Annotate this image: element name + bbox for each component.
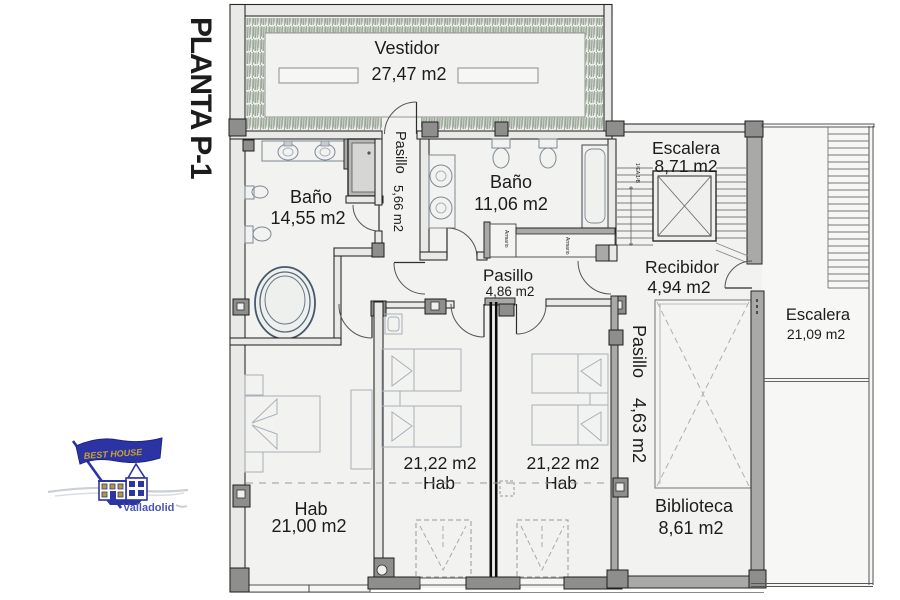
svg-text:27,47 m2: 27,47 m2 [371, 64, 446, 84]
svg-text:21,09 m2: 21,09 m2 [787, 326, 846, 342]
svg-text:Armario: Armario [564, 237, 570, 255]
svg-text:21,22 m2: 21,22 m2 [527, 453, 600, 473]
svg-text:8,71 m2: 8,71 m2 [654, 156, 717, 176]
svg-text:Recibidor: Recibidor [645, 257, 719, 277]
svg-text:Escalera: Escalera [652, 138, 720, 158]
svg-text:Baño: Baño [490, 172, 532, 192]
svg-text:PLANTA P-1: PLANTA P-1 [184, 17, 217, 179]
svg-text:5,66 m2: 5,66 m2 [391, 185, 406, 232]
svg-text:Vestidor: Vestidor [374, 38, 439, 58]
svg-text:Biblioteca: Biblioteca [655, 496, 734, 516]
svg-text:Baño: Baño [290, 187, 332, 207]
svg-text:Valladolid: Valladolid [123, 502, 174, 514]
svg-text:4,63 m2: 4,63 m2 [629, 398, 649, 463]
svg-text:11,06 m2: 11,06 m2 [474, 194, 548, 214]
svg-text:4,94 m2: 4,94 m2 [647, 277, 710, 297]
svg-text:Pasillo: Pasillo [392, 131, 408, 174]
svg-text:Hab: Hab [423, 473, 455, 493]
svg-text:Armario: Armario [503, 230, 509, 248]
svg-text:21,00 m2: 21,00 m2 [271, 516, 346, 536]
svg-text:14,55 m2: 14,55 m2 [270, 208, 345, 228]
svg-text:8,61 m2: 8,61 m2 [658, 518, 723, 538]
svg-text:Pasillo: Pasillo [629, 325, 649, 378]
svg-text:Pasillo: Pasillo [483, 266, 533, 285]
svg-text:Escalera: Escalera [786, 306, 851, 324]
svg-text:1²EA 1²B: 1²EA 1²B [634, 163, 640, 184]
svg-text:4,86 m2: 4,86 m2 [486, 284, 535, 299]
svg-text:21,22 m2: 21,22 m2 [404, 453, 477, 473]
